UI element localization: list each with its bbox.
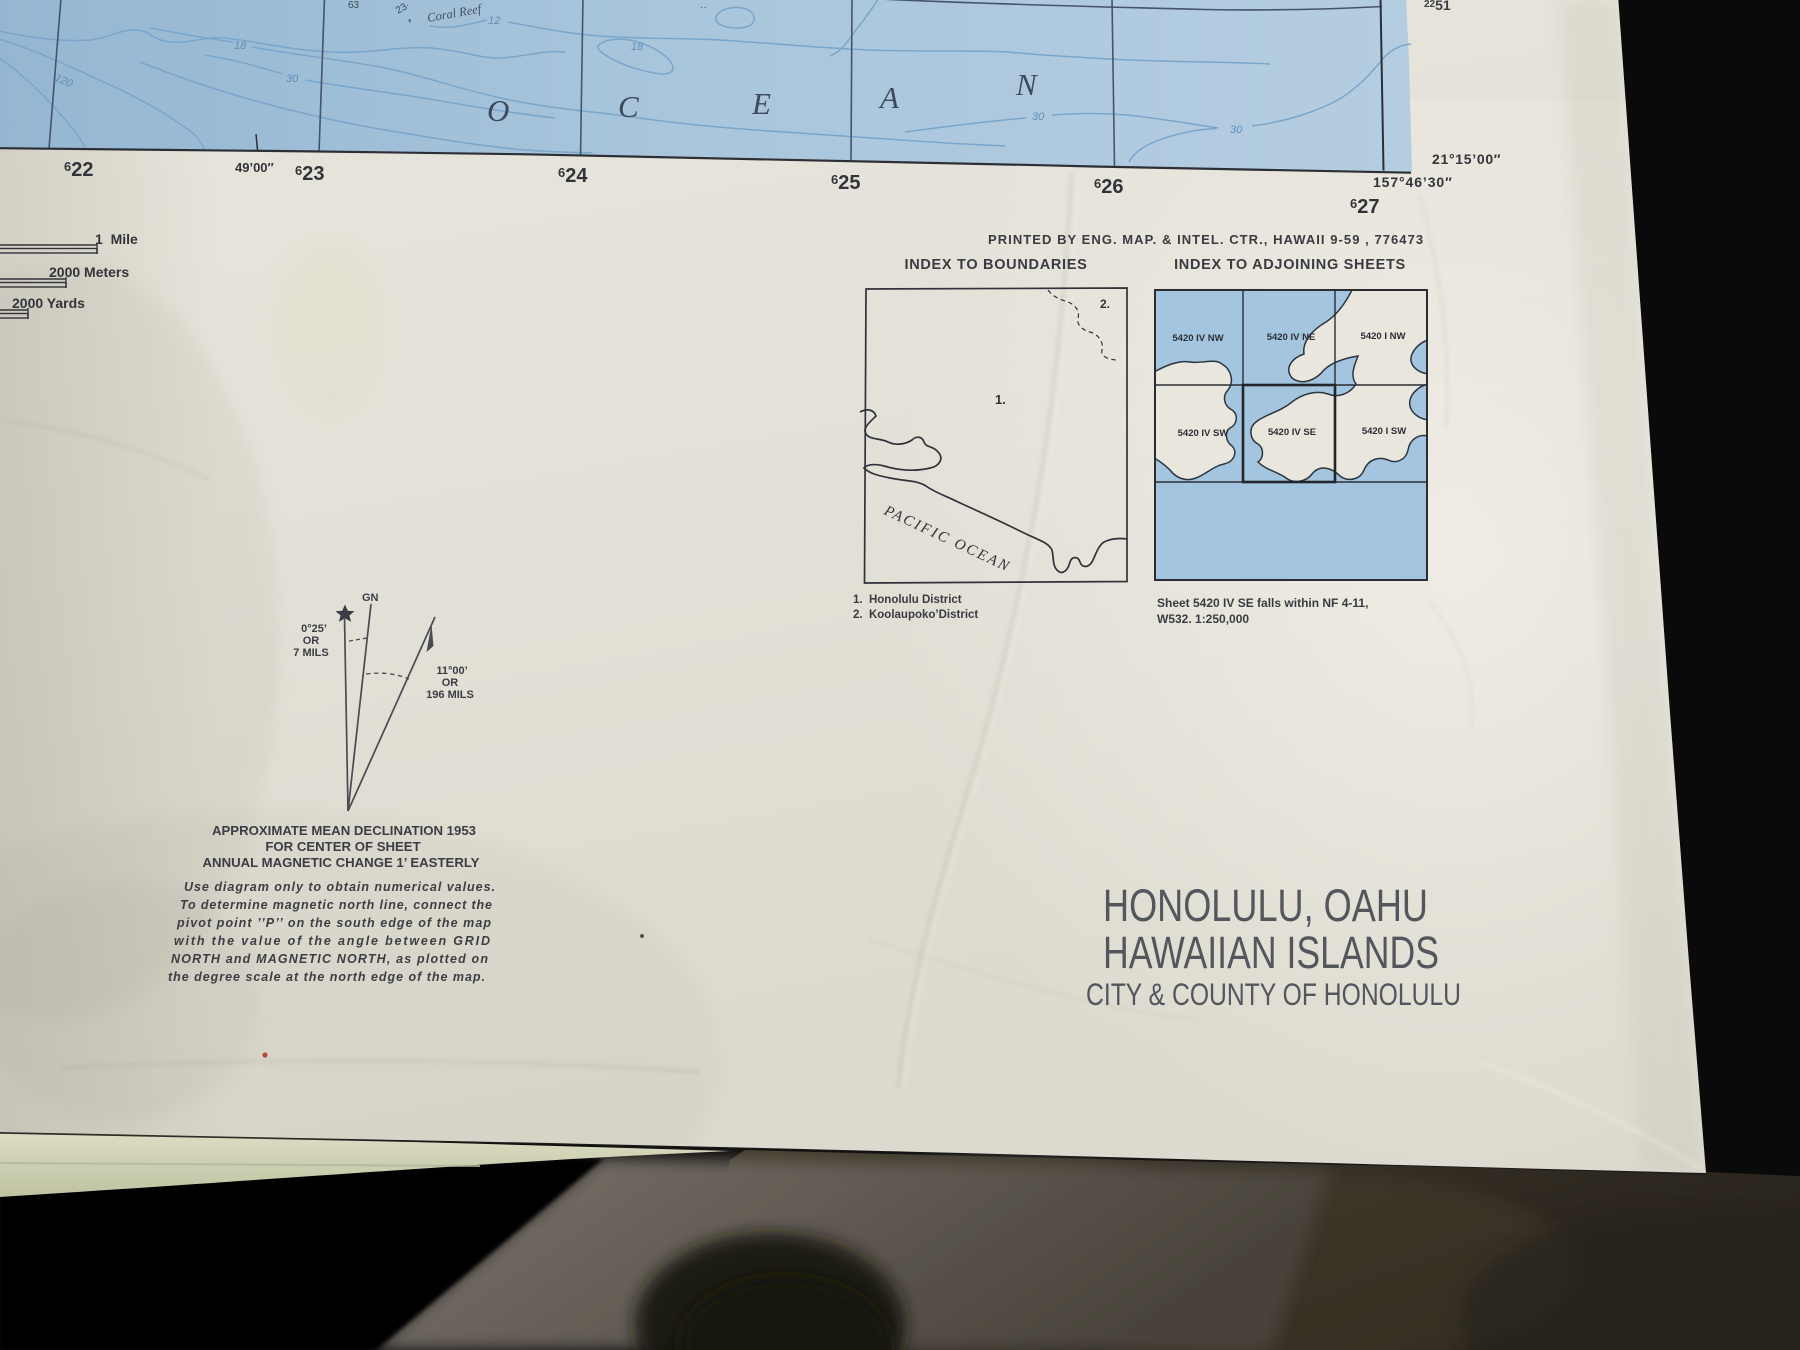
svg-text:30: 30 <box>286 73 299 85</box>
svg-text:HONOLULU, OAHU: HONOLULU, OAHU <box>1103 880 1428 931</box>
svg-text:5420 IV NW: 5420 IV NW <box>1172 333 1223 344</box>
svg-text:63: 63 <box>348 0 360 11</box>
svg-text:To determine magnetic north li: To determine magnetic north line, connec… <box>180 898 492 912</box>
svg-text:5420 IV SE: 5420 IV SE <box>1268 427 1316 438</box>
svg-text:196 MILS: 196 MILS <box>426 689 474 701</box>
svg-text:ANNUAL MAGNETIC CHANGE 1’ EAST: ANNUAL MAGNETIC CHANGE 1’ EASTERLY <box>203 855 480 870</box>
svg-text:E: E <box>751 86 771 121</box>
svg-text:W532. 1:250,000: W532. 1:250,000 <box>1157 612 1249 626</box>
svg-text:5420 IV SW: 5420 IV SW <box>1178 428 1229 439</box>
svg-text:5420 I NW: 5420 I NW <box>1361 331 1406 342</box>
svg-text:11°00’: 11°00’ <box>436 665 467 677</box>
svg-text:OR: OR <box>303 635 320 647</box>
svg-text:5420 I SW: 5420 I SW <box>1362 426 1406 437</box>
svg-text:Use diagram only to obtain num: Use diagram only to obtain numerical val… <box>184 880 495 894</box>
svg-text:A: A <box>878 80 900 115</box>
svg-text:21°15’00″: 21°15’00″ <box>1432 151 1501 167</box>
svg-text:GN: GN <box>362 592 379 604</box>
svg-text:with the value of the angle be: with the value of the angle between GRID <box>174 934 490 948</box>
svg-text:FOR CENTER OF SHEET: FOR CENTER OF SHEET <box>265 839 420 854</box>
svg-text:30: 30 <box>1230 124 1243 136</box>
svg-text:NORTH and MAGNETIC NORTH, as p: NORTH and MAGNETIC NORTH, as plotted on <box>171 952 488 966</box>
svg-text:the degree scale at the north: the degree scale at the north edge of th… <box>168 970 485 984</box>
svg-text:1.: 1. <box>995 392 1006 407</box>
svg-text:··: ·· <box>700 2 707 13</box>
svg-text:18: 18 <box>234 40 247 52</box>
svg-text:0°25’: 0°25’ <box>301 623 327 635</box>
svg-text:2.: 2. <box>1100 297 1110 311</box>
svg-text:1. Honolulu District: 1. Honolulu District <box>853 594 962 606</box>
svg-text:157°46’30″: 157°46’30″ <box>1373 174 1453 190</box>
svg-text:CITY & COUNTY OF HONOLULU: CITY & COUNTY OF HONOLULU <box>1086 976 1461 1012</box>
svg-text:OR: OR <box>442 677 459 689</box>
svg-text:INDEX TO BOUNDARIES: INDEX TO BOUNDARIES <box>904 257 1087 273</box>
svg-text:18: 18 <box>631 41 644 53</box>
svg-text:Sheet 5420 IV SE falls within: Sheet 5420 IV SE falls within NF 4-11, <box>1157 596 1368 610</box>
svg-text:49’00″: 49’00″ <box>235 160 274 175</box>
svg-text:12: 12 <box>488 15 500 27</box>
svg-text:pivot point ’’P’’ on the south: pivot point ’’P’’ on the south edge of t… <box>176 916 491 930</box>
svg-text:7 MILS: 7 MILS <box>293 647 328 659</box>
svg-text:2. Koolaupoko’District: 2. Koolaupoko’District <box>853 609 978 621</box>
svg-text:1 Mile: 1 Mile <box>95 231 138 247</box>
svg-text:N: N <box>1015 67 1039 102</box>
svg-text:C: C <box>618 89 639 124</box>
svg-text:2000 Yards: 2000 Yards <box>12 295 85 311</box>
svg-text:PRINTED BY ENG. MAP. & INTEL.: PRINTED BY ENG. MAP. & INTEL. CTR., HAWA… <box>988 232 1424 247</box>
svg-text:APPROXIMATE MEAN DECLINATION 1: APPROXIMATE MEAN DECLINATION 1953 <box>212 823 476 838</box>
svg-text:O: O <box>487 93 509 128</box>
svg-text:30: 30 <box>1032 111 1045 123</box>
svg-text:INDEX TO ADJOINING SHEETS: INDEX TO ADJOINING SHEETS <box>1174 257 1406 273</box>
svg-text:5420 IV NE: 5420 IV NE <box>1267 332 1316 343</box>
svg-text:2000 Meters: 2000 Meters <box>49 264 129 280</box>
svg-text:HAWAIIAN ISLANDS: HAWAIIAN ISLANDS <box>1103 927 1439 978</box>
